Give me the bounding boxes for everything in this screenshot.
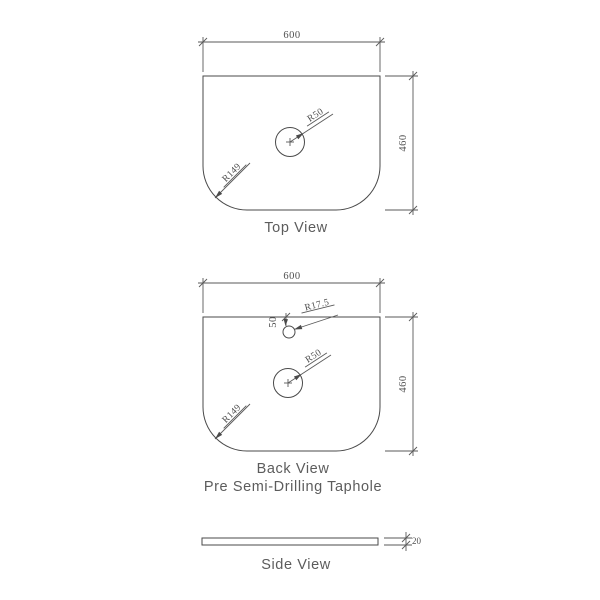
back-view-sublabel: Pre Semi-Drilling Taphole [204, 479, 382, 495]
side-view-label: Side View [261, 557, 331, 573]
back-view: 600 460 50 R17.5 [198, 271, 418, 495]
back-view-height-dimension: 460 [385, 312, 418, 456]
hole-radius-label: R50 [302, 104, 329, 127]
top-view-outline [203, 76, 380, 210]
width-dim-text: 600 [283, 271, 300, 282]
technical-drawing-sheet: 600 460 R50 R149 [0, 0, 600, 600]
top-view-corner-radius: R149 [215, 158, 250, 198]
taphole-radius-label: R17.5 [299, 297, 334, 315]
taphole-circle [283, 326, 295, 338]
leader-arrowhead [296, 133, 304, 139]
taphole-offset-text: 50 [268, 316, 279, 328]
back-view-width-dimension: 600 [198, 271, 385, 313]
top-view-width-dimension: 600 [198, 30, 385, 72]
side-view-slab [202, 538, 378, 545]
corner-radius-label: R149 [217, 158, 247, 188]
height-dim-text: 460 [398, 134, 409, 151]
leader-arrowhead [294, 325, 302, 330]
drawing-svg: 600 460 R50 R149 [0, 0, 600, 600]
hole-radius-label: R50 [300, 345, 327, 368]
dimension-arrowhead [284, 319, 289, 326]
back-view-label: Back View [257, 461, 330, 477]
back-view-basin-hole: R50 [274, 345, 332, 397]
top-view-basin-hole: R50 [276, 104, 334, 156]
top-view-height-dimension: 460 [385, 71, 418, 215]
height-dim-text: 460 [398, 375, 409, 392]
leader-arrowhead [294, 374, 302, 380]
width-dim-text: 600 [283, 30, 300, 41]
top-view: 600 460 R50 R149 [198, 30, 418, 236]
side-view: 20 Side View [202, 532, 422, 573]
top-view-label: Top View [264, 220, 327, 236]
corner-radius-label: R149 [217, 399, 247, 429]
back-view-corner-radius: R149 [215, 399, 250, 439]
thickness-dim-text: 20 [412, 536, 422, 546]
side-view-thickness-dimension: 20 [384, 532, 422, 551]
